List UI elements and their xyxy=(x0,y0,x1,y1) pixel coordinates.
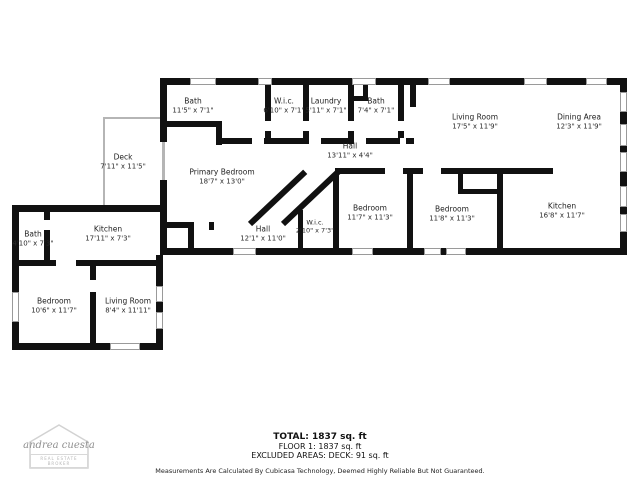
room-label-hall-upper: Hall13'11" x 4'4" xyxy=(327,142,373,161)
wall xyxy=(335,168,385,174)
room-label-primary-bedroom: Primary Bedroom18'7" x 13'0" xyxy=(189,168,254,187)
wall xyxy=(167,121,222,127)
wall xyxy=(403,168,423,174)
room-label-bath-annex: Bath4'10" x 7'3" xyxy=(12,230,53,249)
window xyxy=(446,248,466,255)
logo-tagline: REAL ESTATE BROKER xyxy=(30,454,88,468)
room-label-deck: Deck7'11" x 11'5" xyxy=(100,153,146,172)
wall xyxy=(209,222,214,230)
window xyxy=(156,286,163,302)
window xyxy=(620,214,627,232)
room-label-hall-lower: Hall12'1" x 11'0" xyxy=(240,225,286,244)
floor-plan: Bath11'5" x 7'1" W.i.c.6'10" x 7'1" Laun… xyxy=(0,0,640,480)
deck-edge xyxy=(103,117,165,119)
room-label-kitchen-main: Kitchen16'8" x 11'7" xyxy=(539,202,585,221)
room-label-laundry: Laundry5'11" x 7'1" xyxy=(305,97,346,116)
wall xyxy=(12,205,167,212)
window xyxy=(620,152,627,172)
wall xyxy=(222,138,252,144)
wall xyxy=(410,85,416,107)
window xyxy=(424,248,441,255)
room-label-wic-2: W.i.c.2'10" x 7'3" xyxy=(296,219,334,236)
window xyxy=(586,78,607,85)
wall xyxy=(160,78,167,142)
wall xyxy=(12,205,19,350)
room-label-bedroom-annex: Bedroom10'6" x 11'7" xyxy=(31,297,77,316)
window xyxy=(620,124,627,146)
window xyxy=(12,292,19,322)
wall xyxy=(303,131,309,138)
wall xyxy=(12,260,56,266)
wall xyxy=(156,255,163,350)
window xyxy=(524,78,547,85)
wall xyxy=(90,292,96,350)
wall xyxy=(44,212,50,220)
wall xyxy=(458,189,498,194)
window xyxy=(190,78,216,85)
room-label-bath-top: Bath11'5" x 7'1" xyxy=(172,97,213,116)
wall xyxy=(398,85,404,121)
wall xyxy=(406,138,414,144)
room-label-dining-area: Dining Area12'3" x 11'9" xyxy=(556,113,602,132)
wall xyxy=(497,174,503,255)
logo-name: andrea cuesta xyxy=(16,440,102,451)
wall xyxy=(348,85,354,121)
window xyxy=(352,78,376,85)
wall xyxy=(348,131,354,138)
wall xyxy=(160,180,167,255)
wall xyxy=(188,228,194,255)
wall xyxy=(333,174,339,255)
window xyxy=(352,248,373,255)
window xyxy=(233,248,256,255)
wall xyxy=(407,174,413,255)
wall xyxy=(398,131,404,138)
room-label-kitchen-annex: Kitchen17'11" x 7'3" xyxy=(85,225,131,244)
wall xyxy=(160,78,627,85)
room-label-living-room-annex: Living Room8'4" x 11'11" xyxy=(105,297,151,316)
room-label-living-room-main: Living Room17'5" x 11'9" xyxy=(452,113,498,132)
window xyxy=(620,92,627,112)
wall xyxy=(160,248,627,255)
wall xyxy=(264,138,309,144)
room-label-bedroom-2: Bedroom11'8" x 11'3" xyxy=(429,205,475,224)
wall xyxy=(90,266,96,280)
brand-logo: andrea cuesta REAL ESTATE BROKER xyxy=(16,422,102,474)
room-label-bedroom-1: Bedroom11'7" x 11'3" xyxy=(347,204,393,223)
window xyxy=(258,78,272,85)
window xyxy=(428,78,450,85)
window xyxy=(620,186,627,207)
deck-door xyxy=(162,142,165,180)
room-label-bath-2: Bath7'4" x 7'1" xyxy=(358,97,395,116)
wall xyxy=(265,131,271,138)
wall xyxy=(12,343,163,350)
window xyxy=(110,343,140,350)
window xyxy=(156,312,163,329)
room-label-wic-top: W.i.c.6'10" x 7'1" xyxy=(263,97,304,116)
